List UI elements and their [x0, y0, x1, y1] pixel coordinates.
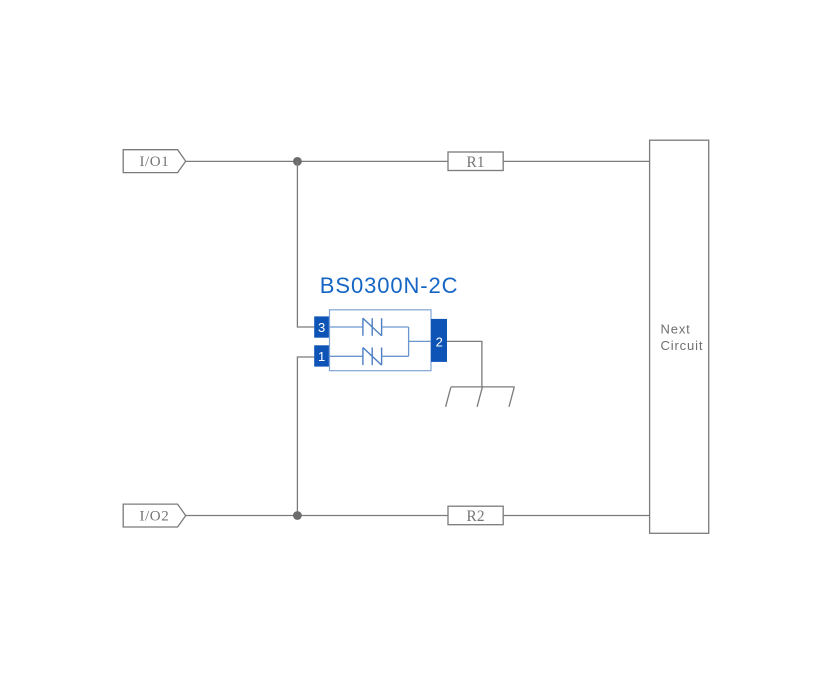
svg-text:R2: R2: [466, 508, 484, 525]
svg-text:I/O1: I/O1: [139, 154, 169, 170]
svg-text:2: 2: [436, 334, 443, 349]
svg-text:BS0300N-2C: BS0300N-2C: [320, 273, 459, 298]
svg-text:3: 3: [318, 320, 325, 335]
svg-text:R1: R1: [466, 154, 484, 171]
svg-text:I/O2: I/O2: [139, 508, 169, 524]
svg-text:Circuit: Circuit: [661, 338, 704, 353]
svg-text:1: 1: [318, 349, 325, 364]
svg-text:Next: Next: [661, 322, 691, 337]
